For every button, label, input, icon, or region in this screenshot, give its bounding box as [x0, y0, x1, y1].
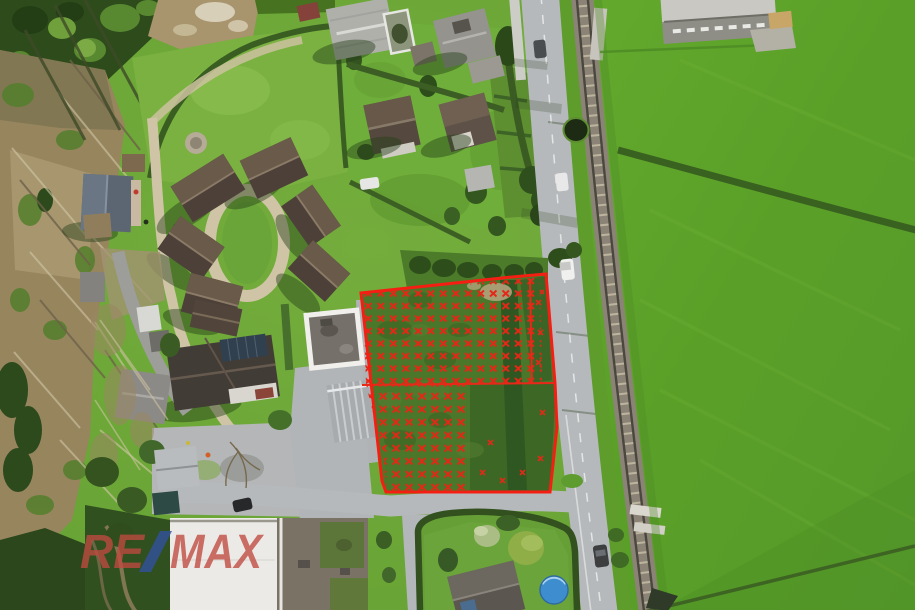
svg-text:RE: RE [80, 526, 146, 579]
svg-text:MAX: MAX [170, 526, 265, 579]
